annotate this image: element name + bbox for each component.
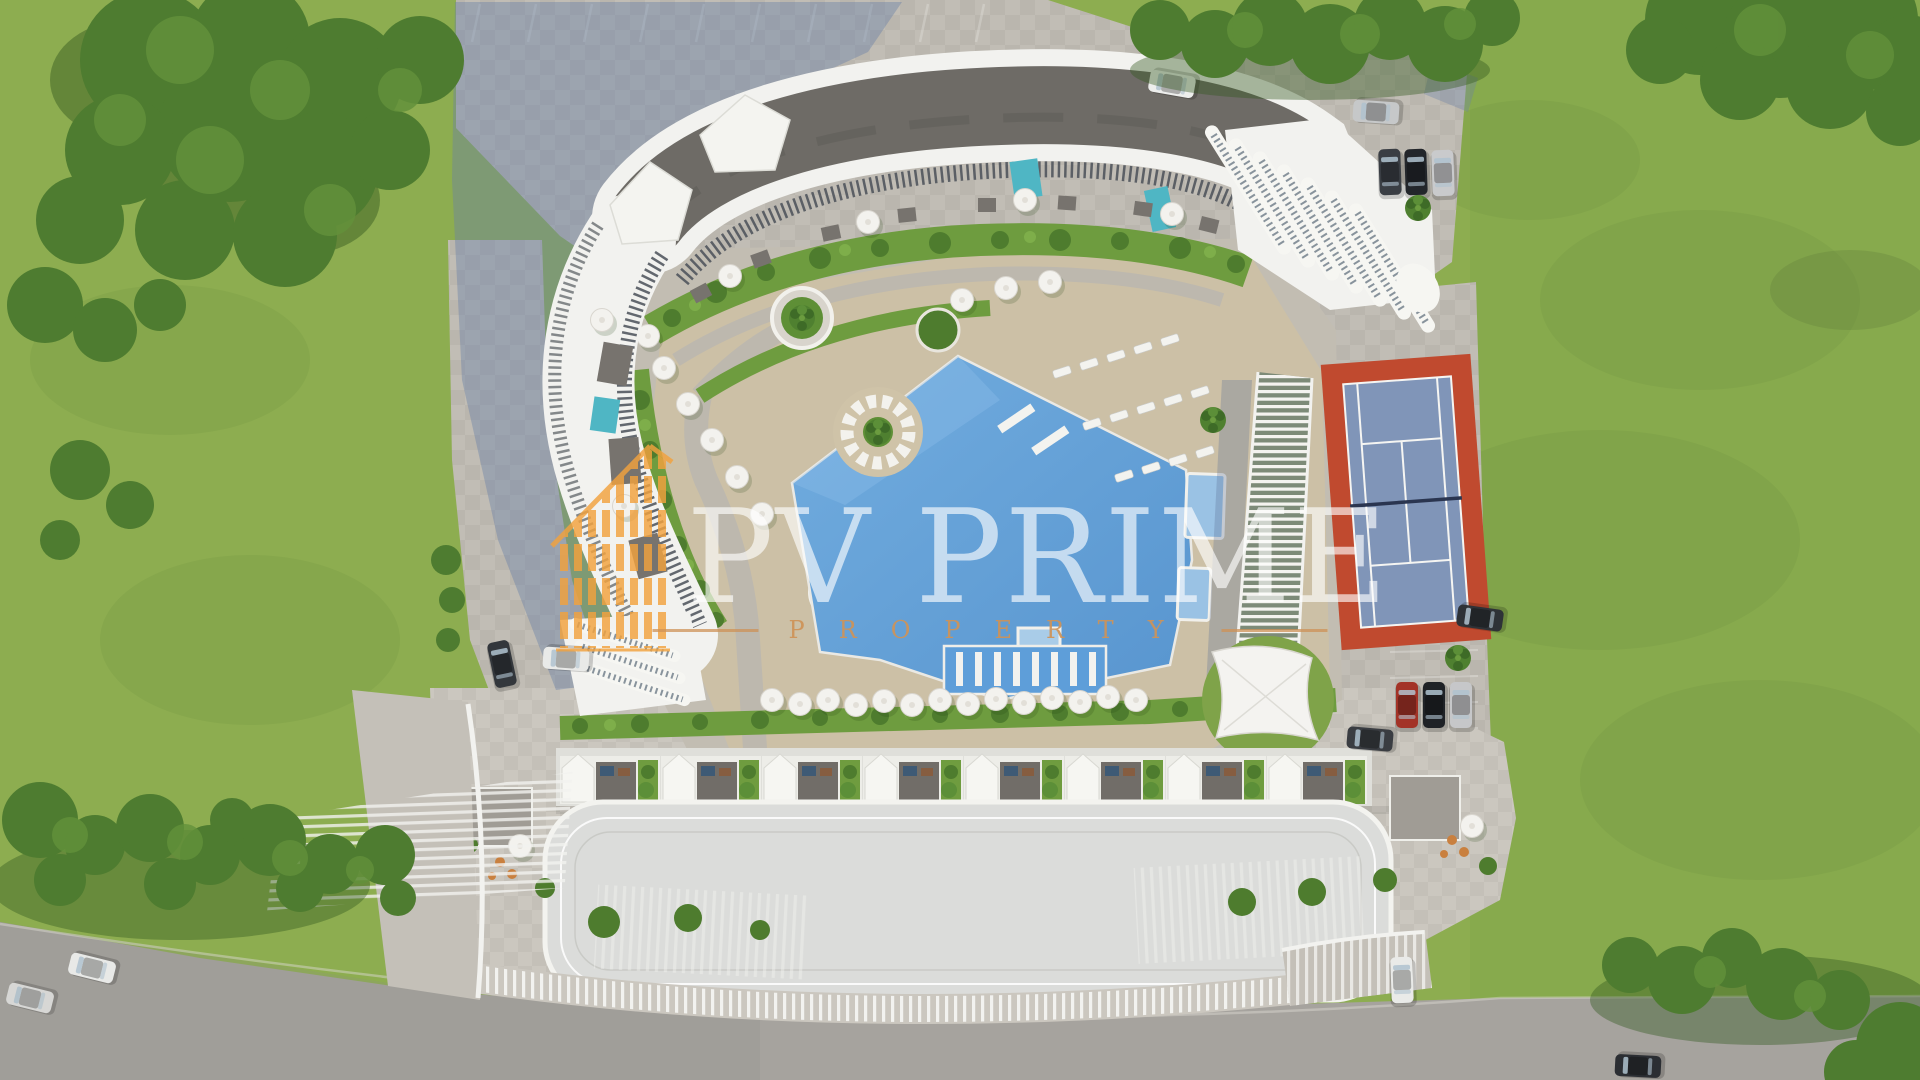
- van: [1389, 957, 1417, 1008]
- car: [1352, 96, 1404, 125]
- car: [1346, 723, 1398, 753]
- shade-sail: [1202, 636, 1334, 764]
- site-plan-render: PV PRIME PROPERTY: [0, 0, 1920, 1080]
- car: [1449, 682, 1475, 732]
- car: [1422, 682, 1448, 732]
- connector-block: [1390, 776, 1460, 840]
- palm-tree: [1200, 407, 1226, 433]
- car: [1614, 1051, 1665, 1080]
- pool-bar: [833, 387, 923, 477]
- car: [1377, 149, 1405, 200]
- circular-planter: [772, 288, 832, 348]
- round-tree: [917, 309, 959, 351]
- car: [1430, 150, 1458, 201]
- palm-tree: [1445, 645, 1471, 671]
- rooftop-pool: [590, 396, 620, 433]
- car: [1403, 149, 1431, 200]
- car: [1395, 682, 1421, 732]
- palm-tree: [1405, 195, 1431, 221]
- scene-svg: [0, 0, 1920, 1080]
